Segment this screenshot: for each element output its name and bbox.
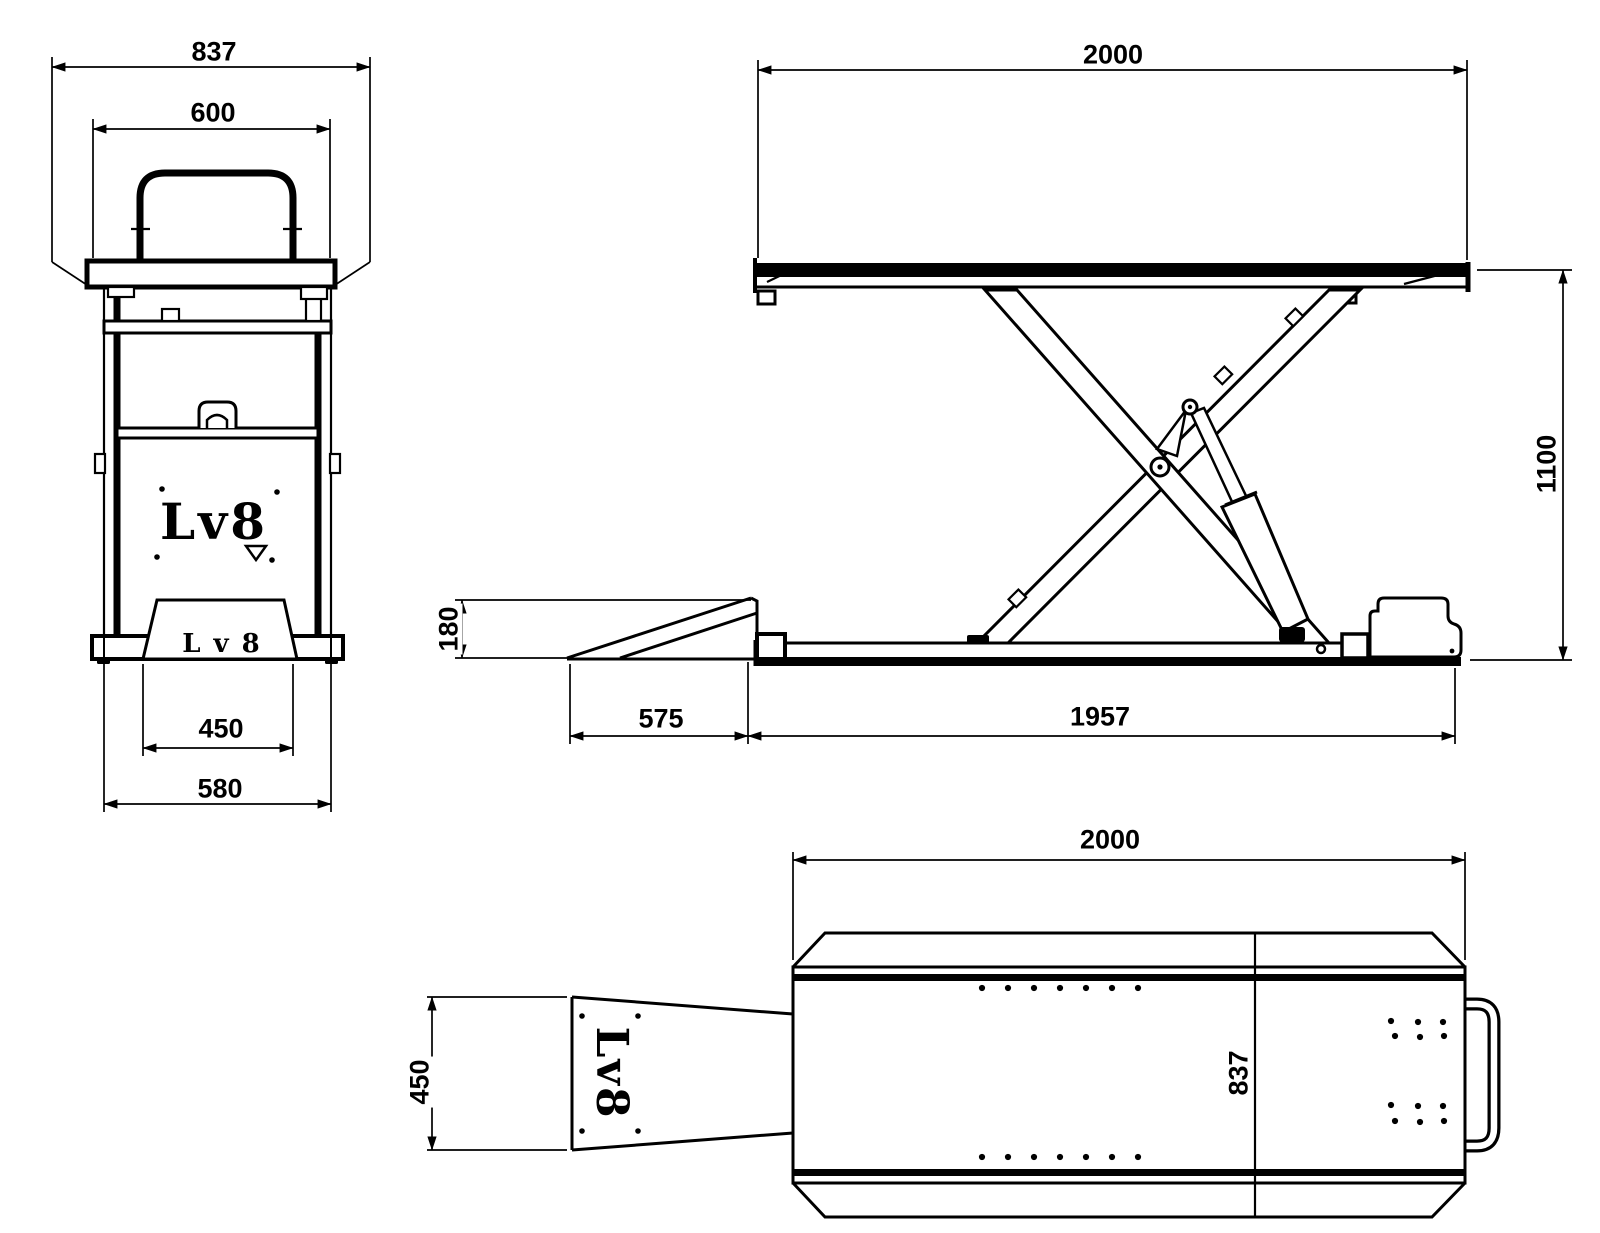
scissor-mechanism — [967, 290, 1360, 644]
base-rail — [755, 634, 1461, 666]
dim-side-ramp-length: 575 — [635, 706, 686, 733]
front-view — [52, 57, 370, 812]
dim-side-base-length: 1957 — [1067, 704, 1133, 731]
technical-drawing-sheet: 837 600 450 580 2000 1100 180 575 1957 2… — [0, 0, 1600, 1233]
platform-top — [793, 933, 1465, 1217]
hydraulic-cylinder — [1157, 400, 1308, 642]
dim-top-ramp-width: 450 — [407, 1056, 434, 1107]
platform-front — [87, 261, 335, 287]
side-view — [455, 60, 1572, 744]
dim-front-ramp-width: 450 — [195, 716, 246, 743]
platform-side — [755, 258, 1468, 304]
pump-unit — [1370, 598, 1461, 657]
brand-logo-top-ramp: Lv8 — [589, 1026, 633, 1119]
dim-front-base-width: 580 — [194, 776, 245, 803]
brand-logo-front-ramp: Lv8 — [169, 631, 272, 657]
dim-side-platform-length: 2000 — [1080, 42, 1146, 69]
center-bracket — [199, 402, 236, 428]
dim-top-platform-width: 837 — [1226, 1047, 1253, 1098]
dim-front-platform-width: 600 — [187, 100, 238, 127]
drawing-canvas — [0, 0, 1600, 1233]
front-frame — [95, 287, 340, 650]
dim-side-ramp-height: 180 — [436, 603, 463, 654]
dim-front-overall-width: 837 — [188, 39, 239, 66]
ramp-side — [567, 598, 758, 659]
handle-hoop — [140, 173, 293, 270]
brand-logo-front: Lv8 — [160, 497, 268, 547]
dim-top-platform-length: 2000 — [1077, 827, 1143, 854]
dim-side-lift-height: 1100 — [1534, 432, 1561, 497]
